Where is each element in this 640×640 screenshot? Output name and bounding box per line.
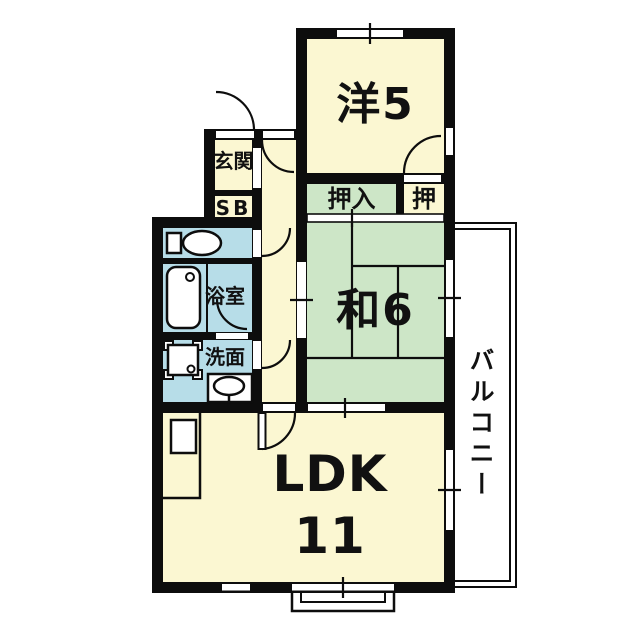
kitchen-sink-icon [171,420,196,453]
floor-plan: 洋5 玄関 SB 押入 押 和6 浴室 洗面 LDK 11 バルコニー [0,0,640,640]
closet-side-label: 押 [404,187,444,211]
bathtub-drain-icon [186,273,194,281]
hall-top-door-gap [263,131,294,138]
hall-ldk-door-gap [263,404,295,411]
sink-icon [208,374,252,402]
japanese-ldk-slider [308,404,385,411]
western-room-label: 洋5 [307,83,444,127]
toilet-door-gap [253,230,261,257]
bathtub-icon [167,267,200,328]
ldk-label: LDK [240,449,420,499]
bath-label: 浴室 [200,286,250,306]
washing-machine-icon [164,341,202,379]
entrance-hall-opening [253,148,261,188]
western-closet-door-gap [404,175,441,182]
ldk-size-label: 11 [240,511,420,561]
toilet-tank-icon [167,233,181,253]
balcony-label: バルコニー [466,334,494,514]
entrance-door-gap [216,131,254,138]
bath-door-gap [216,333,248,339]
closet-main-label: 押入 [307,187,396,211]
closet-sliding-door [307,214,444,222]
toilet-bowl-icon [183,231,221,255]
washroom-door-gap [253,341,261,369]
ldk-door-leaf [259,413,266,449]
japanese-room-label: 和6 [307,289,444,333]
entrance-door-arc [216,92,254,130]
entrance-label: 玄関 [213,151,254,171]
western-right-opening [446,128,453,155]
ldk-small-window [222,584,250,591]
washroom-label: 洗面 [199,347,251,367]
shoebox-label: SB [213,198,254,218]
